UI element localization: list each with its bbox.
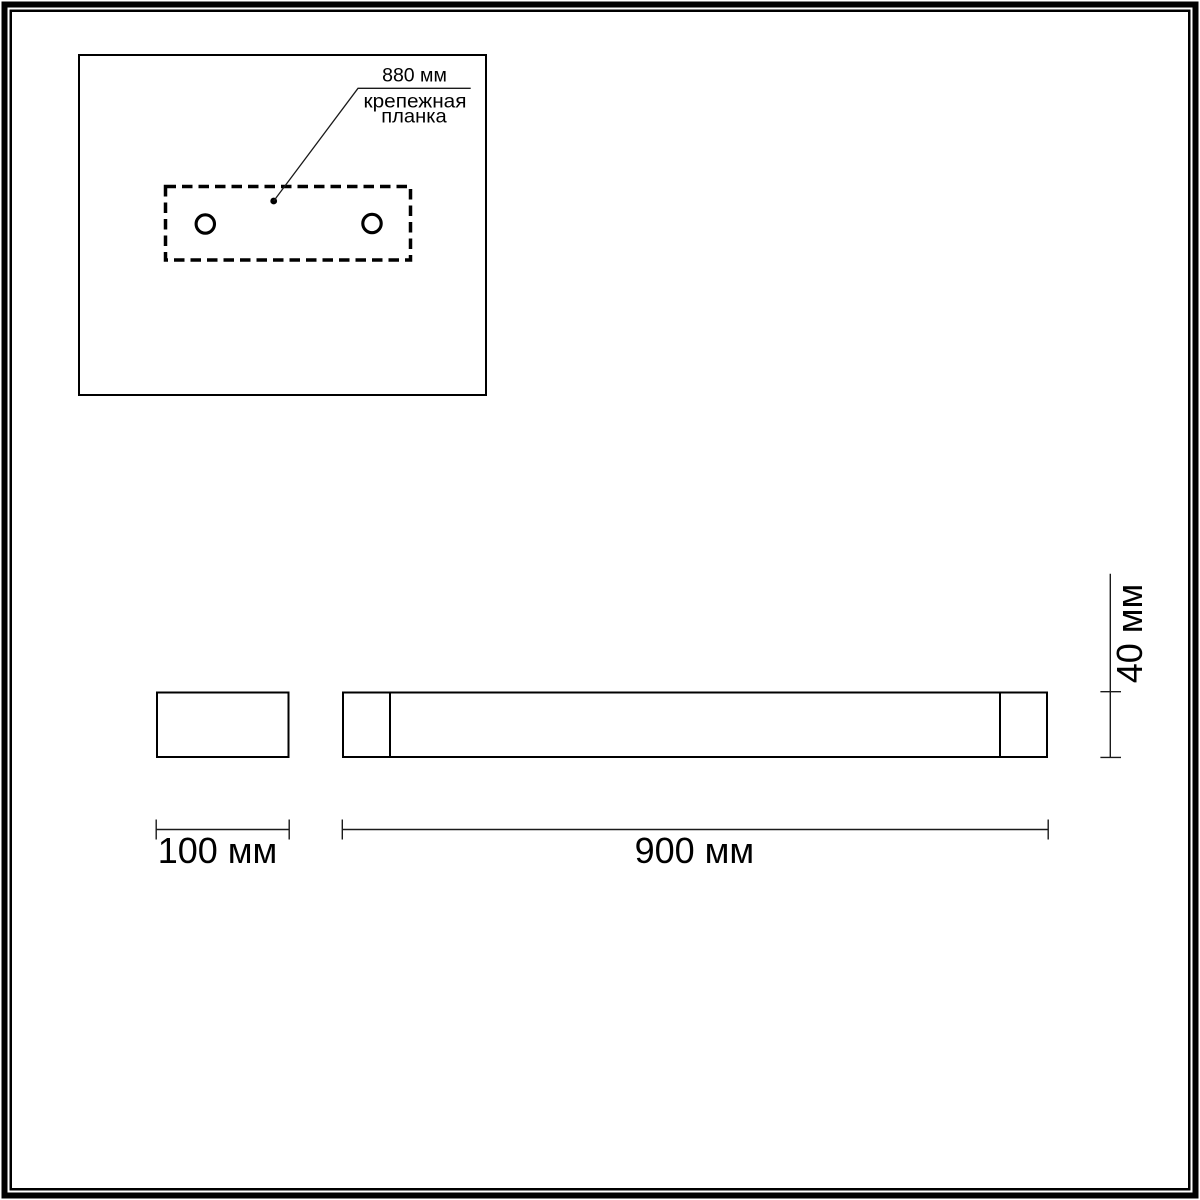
svg-text:100 мм: 100 мм: [158, 830, 278, 871]
svg-text:880 мм: 880 мм: [382, 65, 447, 87]
svg-text:планка: планка: [381, 106, 447, 128]
svg-text:900 мм: 900 мм: [635, 830, 755, 871]
svg-text:40 мм: 40 мм: [1109, 584, 1150, 684]
